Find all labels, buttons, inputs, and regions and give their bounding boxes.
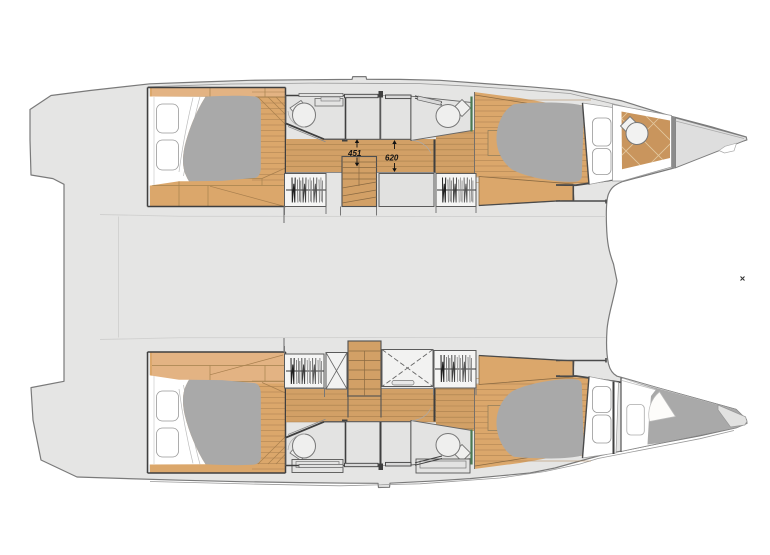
- svg-text:620: 620: [385, 154, 399, 163]
- svg-text:451: 451: [347, 149, 362, 158]
